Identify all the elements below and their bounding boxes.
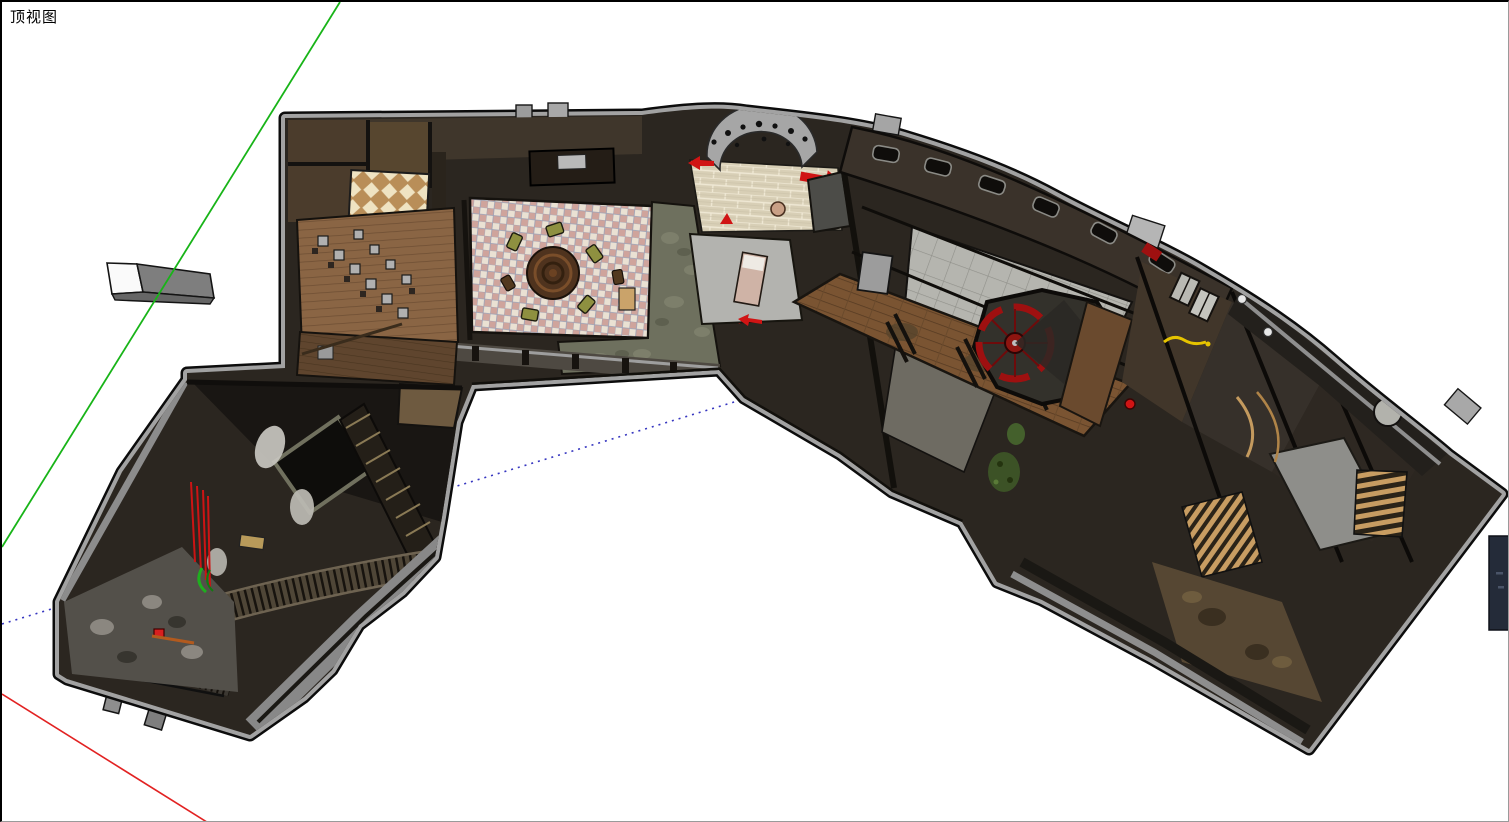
view-label: 顶视图 bbox=[10, 6, 58, 27]
model-canvas[interactable] bbox=[2, 2, 1509, 822]
stool bbox=[771, 202, 785, 216]
side-object bbox=[1489, 536, 1509, 630]
round-dining-table bbox=[527, 247, 579, 299]
tan-wall bbox=[398, 384, 462, 428]
sideboard bbox=[529, 149, 614, 186]
sketchup-viewport[interactable]: 顶视图 bbox=[0, 0, 1509, 822]
bar-room-floor bbox=[297, 208, 458, 348]
gray-pillar bbox=[858, 252, 893, 294]
red-marker bbox=[1125, 399, 1135, 409]
slat-panel bbox=[1354, 470, 1407, 537]
